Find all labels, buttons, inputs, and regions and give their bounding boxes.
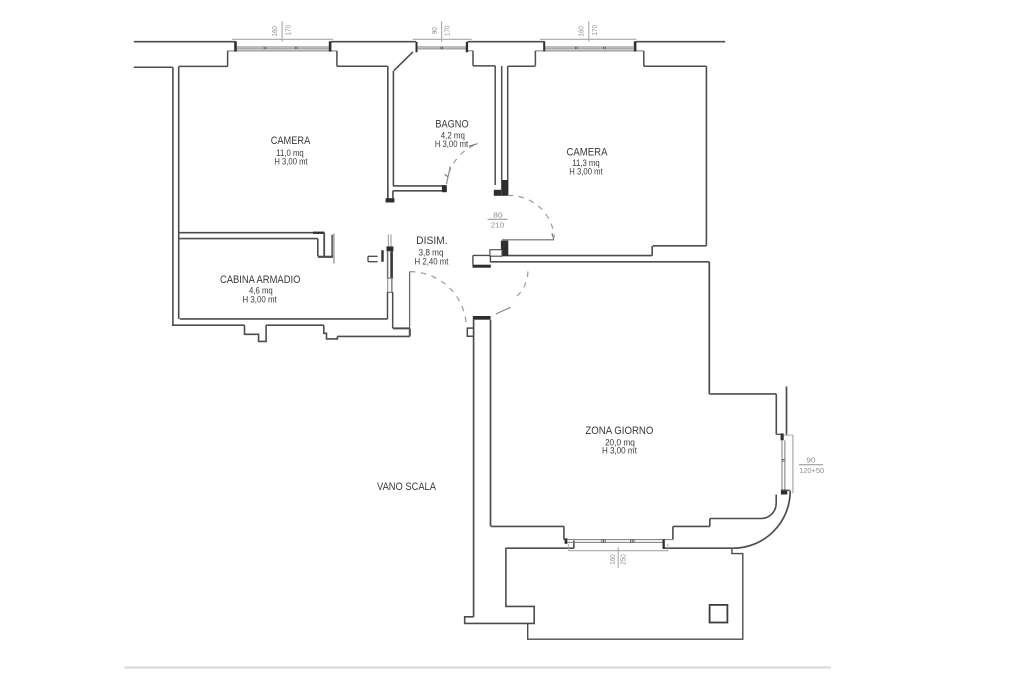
svg-text:160: 160: [577, 26, 586, 37]
svg-text:DISIM.: DISIM.: [416, 235, 448, 247]
svg-text:CAMERA: CAMERA: [567, 146, 609, 158]
svg-text:160: 160: [270, 26, 279, 37]
svg-text:ZONA GIORNO: ZONA GIORNO: [585, 425, 653, 437]
svg-text:H 3,00 mt: H 3,00 mt: [242, 294, 277, 304]
svg-text:170: 170: [442, 25, 451, 36]
svg-text:90: 90: [430, 27, 439, 34]
svg-text:120+50: 120+50: [799, 466, 824, 475]
svg-text:H 3,00 mt: H 3,00 mt: [274, 157, 308, 167]
svg-text:170: 170: [284, 25, 293, 36]
svg-text:VANO SCALA: VANO SCALA: [377, 481, 437, 493]
svg-text:80: 80: [493, 210, 503, 219]
svg-text:90: 90: [807, 456, 816, 465]
svg-text:170: 170: [590, 25, 599, 36]
svg-text:H 3,00 mt: H 3,00 mt: [569, 166, 603, 176]
svg-text:160: 160: [608, 554, 617, 565]
svg-text:CAMERA: CAMERA: [271, 135, 311, 147]
svg-text:210: 210: [491, 221, 505, 230]
svg-text:CABINA ARMADIO: CABINA ARMADIO: [220, 274, 301, 286]
svg-text:250: 250: [619, 554, 628, 565]
svg-text:BAGNO: BAGNO: [435, 118, 468, 130]
svg-text:H 3,00 mt: H 3,00 mt: [602, 446, 637, 456]
svg-text:H 2,40 mt: H 2,40 mt: [415, 256, 449, 266]
svg-text:H 3,00 mt: H 3,00 mt: [435, 139, 469, 149]
